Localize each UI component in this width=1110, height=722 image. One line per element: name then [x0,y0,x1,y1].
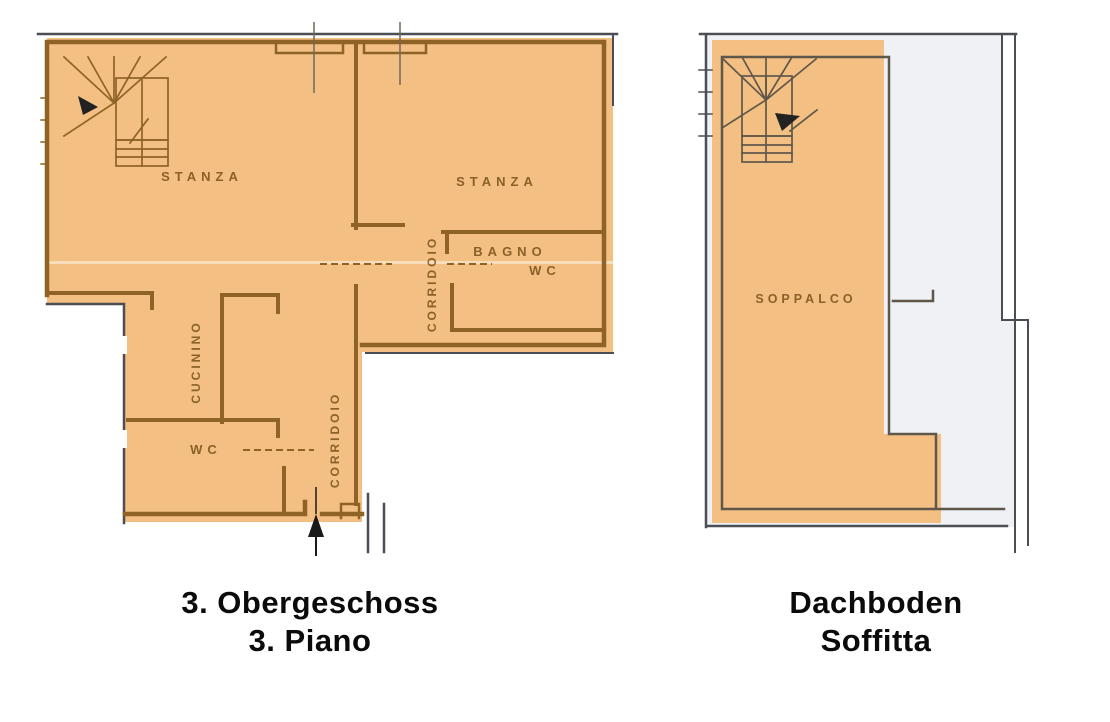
right-plan-caption-line2: Soffitta [722,622,1030,660]
room-label-bagno: BAGNO [473,244,546,259]
left-plan-caption-line1: 3. Obergeschoss [110,584,510,622]
window-break [121,430,127,448]
room-label-bagno-wc: WC [529,263,561,278]
left-plan-caption: 3. Obergeschoss 3. Piano [110,584,510,660]
right-plan: SOPPALCO [699,34,1028,552]
left-plan-caption-line2: 3. Piano [110,622,510,660]
room-label-cucinino: CUCININO [189,320,203,403]
room-label-wc: WC [190,442,222,457]
stairwell-lines-below [368,494,384,552]
room-label-soppalco: SOPPALCO [755,292,856,306]
scan-streak [47,261,613,264]
right-plan-caption: Dachboden Soffitta [722,584,1030,660]
room-label-stanza-left: STANZA [161,169,243,184]
window-break [121,336,127,354]
floorplan-scan: STANZA STANZA BAGNO WC CORRIDOIO CUCININ… [0,0,1110,722]
room-label-stanza-right: STANZA [456,174,538,189]
room-label-corridoio-upper: CORRIDOIO [425,236,439,332]
right-plan-caption-line1: Dachboden [722,584,1030,622]
scan-edge-lower-left [47,304,124,523]
room-label-corridoio-lower: CORRIDOIO [328,392,342,488]
left-plan: STANZA STANZA BAGNO WC CORRIDOIO CUCININ… [38,22,617,556]
